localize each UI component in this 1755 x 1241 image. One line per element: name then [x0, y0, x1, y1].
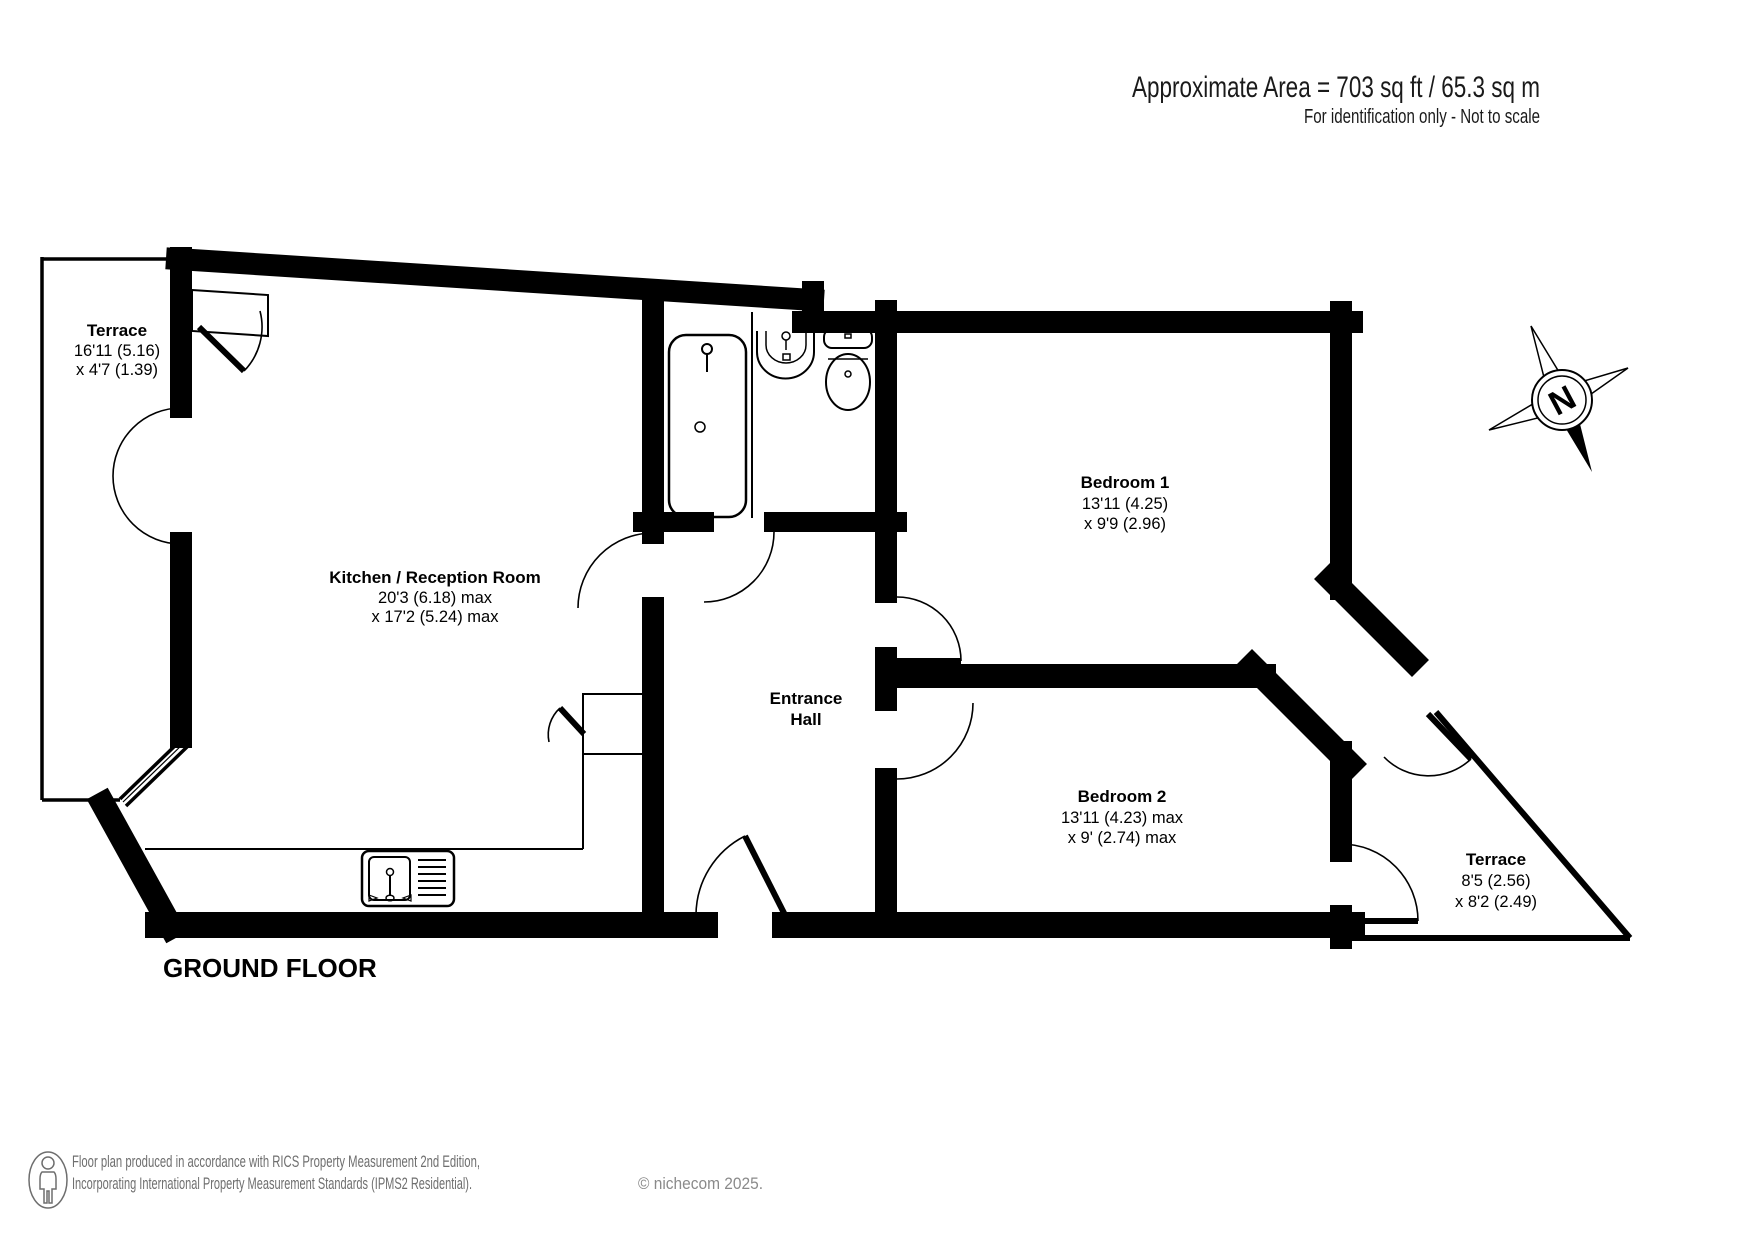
room-dim: 16'11 (5.16) — [74, 342, 160, 360]
compass-icon: N — [1489, 326, 1628, 472]
room-dim: x 9'9 (2.96) — [1084, 515, 1166, 533]
bathroom-fixtures — [669, 312, 872, 518]
room-name: Entrance — [770, 689, 843, 708]
door-bedroom2-terrace-icon — [1341, 844, 1418, 921]
room-name: Hall — [790, 710, 821, 729]
kitchen-sink-icon — [362, 851, 454, 906]
room-label-terrace-right: Terrace 8'5 (2.56) x 8'2 (2.49) — [1455, 850, 1537, 911]
floorplan-canvas: Approximate Area = 703 sq ft / 65.3 sq m… — [0, 0, 1755, 1241]
disclaimer-text: For identification only - Not to scale — [1304, 106, 1540, 128]
door-entrance-icon — [696, 836, 785, 915]
window-icon — [120, 739, 188, 806]
room-dim: x 17'2 (5.24) max — [372, 608, 500, 626]
floor-title: GROUND FLOOR — [163, 953, 377, 983]
room-name: Terrace — [1466, 850, 1526, 869]
french-door-icon — [113, 408, 181, 544]
room-name: Kitchen / Reception Room — [329, 568, 541, 587]
footer: Floor plan produced in accordance with R… — [29, 1152, 763, 1208]
door-bedroom1-icon — [897, 597, 961, 661]
door-kitchen-top-icon — [199, 311, 262, 371]
door-bathroom-icon — [704, 532, 774, 602]
room-label-entrance-hall: Entrance Hall — [770, 689, 843, 729]
header: Approximate Area = 703 sq ft / 65.3 sq m… — [1132, 71, 1540, 128]
approximate-area-text: Approximate Area = 703 sq ft / 65.3 sq m — [1132, 71, 1540, 104]
room-dim: 20'3 (6.18) max — [378, 589, 493, 607]
room-dim: x 8'2 (2.49) — [1455, 893, 1537, 911]
room-label-bedroom-1: Bedroom 1 13'11 (4.25) x 9'9 (2.96) — [1081, 473, 1170, 533]
room-dim: 13'11 (4.23) max — [1061, 809, 1184, 827]
room-dim: 8'5 (2.56) — [1461, 872, 1530, 890]
doors — [113, 311, 1471, 921]
footer-line-2: Incorporating International Property Mea… — [72, 1174, 472, 1193]
kitchen-fittings — [145, 694, 645, 906]
sink-icon — [757, 331, 814, 378]
door-diagonal-terrace-icon — [1384, 714, 1471, 776]
bathtub-icon — [669, 335, 746, 517]
door-bedroom2-icon — [897, 703, 973, 779]
toilet-icon — [824, 329, 872, 410]
room-name: Terrace — [87, 321, 147, 340]
room-dim: 13'11 (4.25) — [1082, 495, 1168, 513]
person-icon — [29, 1152, 67, 1208]
room-label-bedroom-2: Bedroom 2 13'11 (4.23) max x 9' (2.74) m… — [1061, 787, 1184, 847]
room-dim: x 4'7 (1.39) — [76, 361, 158, 379]
copyright-text: © nichecom 2025. — [638, 1175, 763, 1193]
cupboard — [583, 694, 645, 754]
room-name: Bedroom 1 — [1081, 473, 1170, 492]
room-label-kitchen: Kitchen / Reception Room 20'3 (6.18) max… — [329, 568, 541, 626]
cupboard-door-icon — [548, 708, 584, 742]
room-dim: x 9' (2.74) max — [1068, 829, 1177, 847]
floorplan-page: Approximate Area = 703 sq ft / 65.3 sq m… — [0, 0, 1755, 1241]
door-kitchen-hall-icon — [578, 533, 653, 608]
room-labels: Terrace 16'11 (5.16) x 4'7 (1.39) Kitche… — [74, 321, 1537, 911]
room-name: Bedroom 2 — [1078, 787, 1167, 806]
footer-line-1: Floor plan produced in accordance with R… — [72, 1152, 480, 1171]
room-label-terrace-top: Terrace 16'11 (5.16) x 4'7 (1.39) — [74, 321, 160, 379]
